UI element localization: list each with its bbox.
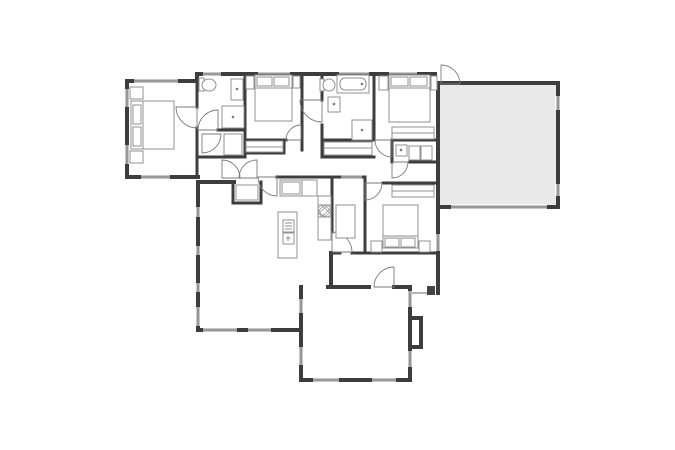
- room-hallway: [199, 157, 429, 175]
- master-bed: [133, 105, 141, 124]
- master-shower: [232, 116, 235, 119]
- hall-bath-toilet: [323, 79, 335, 91]
- laundry-fixtures: [409, 146, 420, 160]
- master-bedroom-door: [176, 107, 197, 128]
- laundry-fixtures: [400, 149, 403, 152]
- laundry-door: [392, 162, 408, 178]
- master-bath-toilet: [202, 79, 216, 91]
- kitchen-pantry: [318, 205, 331, 217]
- bedroom4-door: [365, 183, 382, 200]
- rear-porch-edge: [427, 286, 435, 295]
- back-door: [374, 267, 394, 287]
- master-bed: [133, 127, 141, 146]
- bedroom2-door: [286, 125, 301, 140]
- master-closet-door: [202, 134, 221, 153]
- bedroom4-bed: [401, 238, 415, 247]
- mudroom-closet-shelf: [236, 185, 258, 200]
- bedroom3-bed: [391, 77, 408, 86]
- floor-plan-drawing: [0, 0, 675, 450]
- floor-plan-page: [0, 0, 675, 450]
- garage-floor: [440, 85, 556, 205]
- bedroom2-bed: [293, 76, 300, 88]
- bedroom3-door: [375, 140, 392, 157]
- bedroom4-bed: [371, 241, 382, 252]
- bedroom2-bed: [246, 76, 254, 89]
- dining-table: [336, 205, 355, 238]
- hall-bath-shower: [361, 129, 364, 132]
- master-nightstands: [130, 151, 143, 163]
- hall-bath-tub: [361, 83, 364, 86]
- master-nightstands: [130, 87, 143, 99]
- hall-door-right: [239, 160, 257, 178]
- bedroom2-bed: [274, 77, 289, 86]
- kitchen-pantry: [318, 196, 331, 240]
- kitchen-counter: [302, 180, 317, 196]
- hall-door-left: [222, 160, 240, 178]
- bedroom3-bed: [379, 76, 388, 90]
- bedroom2-bed: [257, 77, 272, 86]
- bedroom4-bed: [419, 241, 430, 252]
- bedroom3-bed: [431, 76, 437, 90]
- master-bath-door: [198, 110, 218, 130]
- hall-bath-sink: [333, 103, 336, 106]
- master-bath-sink: [236, 88, 239, 91]
- bedroom3-bed: [410, 77, 427, 86]
- room-family-room: [303, 289, 408, 378]
- bedroom4-bed: [385, 238, 399, 247]
- master-closet-shelf: [224, 134, 242, 155]
- kitchen-counter: [282, 182, 300, 194]
- laundry-fixtures: [421, 146, 432, 160]
